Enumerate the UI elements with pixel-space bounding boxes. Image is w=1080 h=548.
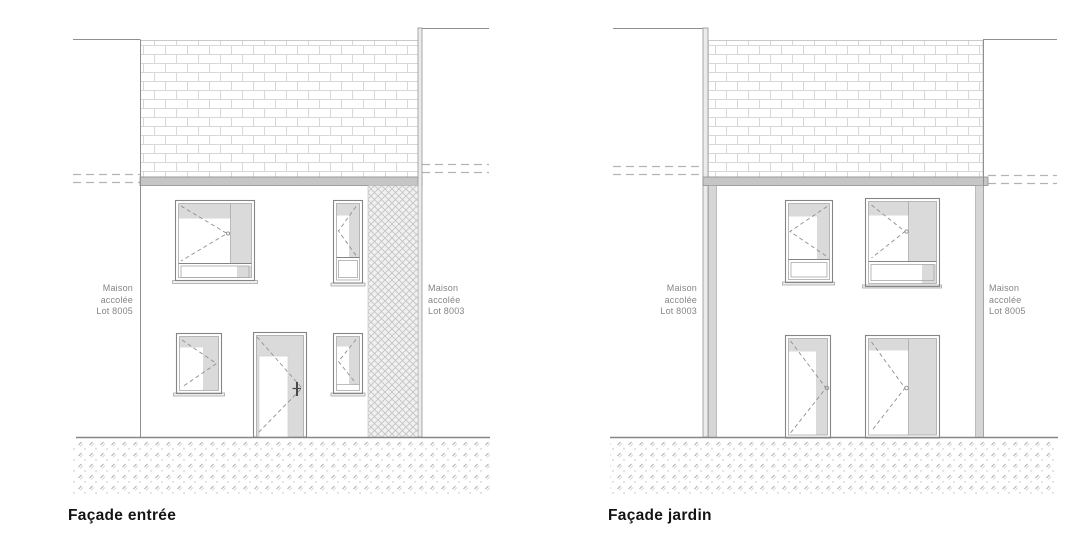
- party-wall-boundary: [703, 28, 708, 437]
- pilaster: [709, 186, 717, 438]
- neighbor-label-right-entree: Maison accolée Lot 8003: [428, 283, 508, 318]
- brick-cladding: [709, 41, 984, 178]
- party-wall-hatch: [368, 186, 418, 438]
- upper-window-right: [863, 199, 942, 289]
- neighbor-label-left-jardin: Maison accolée Lot 8003: [624, 283, 697, 318]
- upper-window-left: [783, 201, 835, 286]
- facade-title-entree: Façade entrée: [68, 507, 176, 525]
- facade-entree-linework: [73, 28, 490, 497]
- ground-window: [174, 334, 225, 397]
- ground-window-narrow: [331, 334, 365, 397]
- pilaster: [976, 186, 984, 438]
- neighbor-label-right-jardin: Maison accolée Lot 8005: [989, 283, 1069, 318]
- terrain-hatch: [73, 439, 490, 497]
- party-wall-boundary: [418, 28, 422, 437]
- floor-slab-band: [703, 177, 988, 186]
- sliding-door: [866, 336, 940, 439]
- facade-title-jardin: Façade jardin: [608, 507, 712, 525]
- terrain-hatch: [610, 439, 1057, 497]
- architectural-elevation-sheet: Maison accolée Lot 8005 Maison accolée L…: [0, 0, 1080, 548]
- french-door: [786, 336, 831, 439]
- brick-cladding: [141, 41, 422, 178]
- neighbor-label-left-entree: Maison accolée Lot 8005: [60, 283, 133, 318]
- elevation-drawing: [0, 0, 1080, 548]
- window-handle-icon: [226, 232, 229, 235]
- floor-slab-band: [140, 177, 422, 186]
- facade-jardin-linework: [610, 28, 1058, 497]
- entry-door: [254, 333, 307, 438]
- upper-window-narrow: [331, 201, 365, 287]
- upper-window-large: [173, 201, 258, 284]
